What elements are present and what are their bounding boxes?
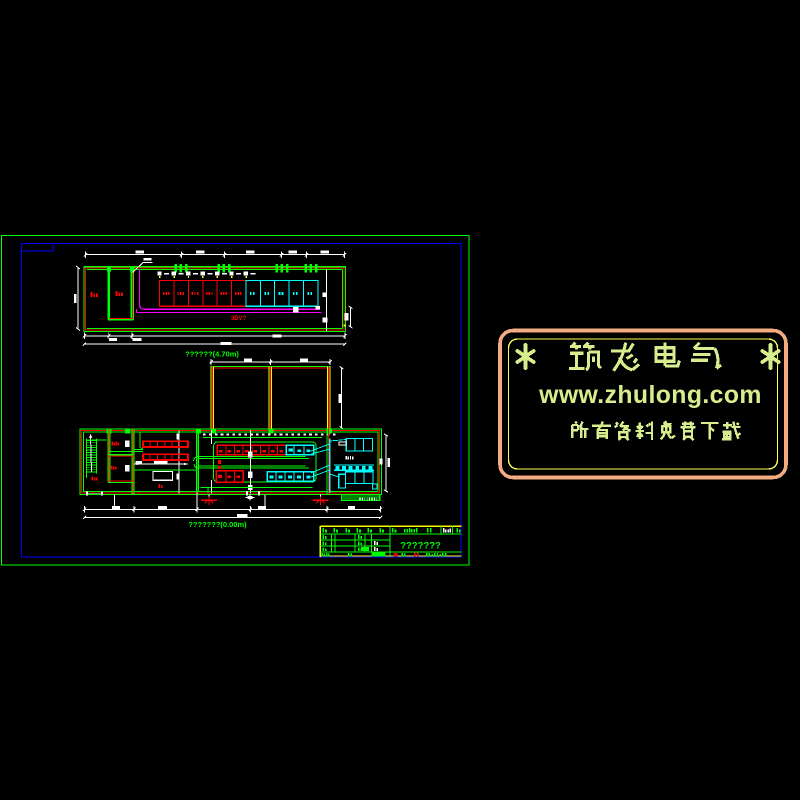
svg-text:3DV?: 3DV?: [231, 316, 247, 322]
svg-text:???????(0.00m): ???????(0.00m): [188, 520, 247, 529]
svg-text:???????: ???????: [400, 541, 441, 552]
svg-text:www.zhulong.com: www.zhulong.com: [538, 382, 762, 409]
svg-text:??????(4.70m): ??????(4.70m): [185, 350, 239, 359]
